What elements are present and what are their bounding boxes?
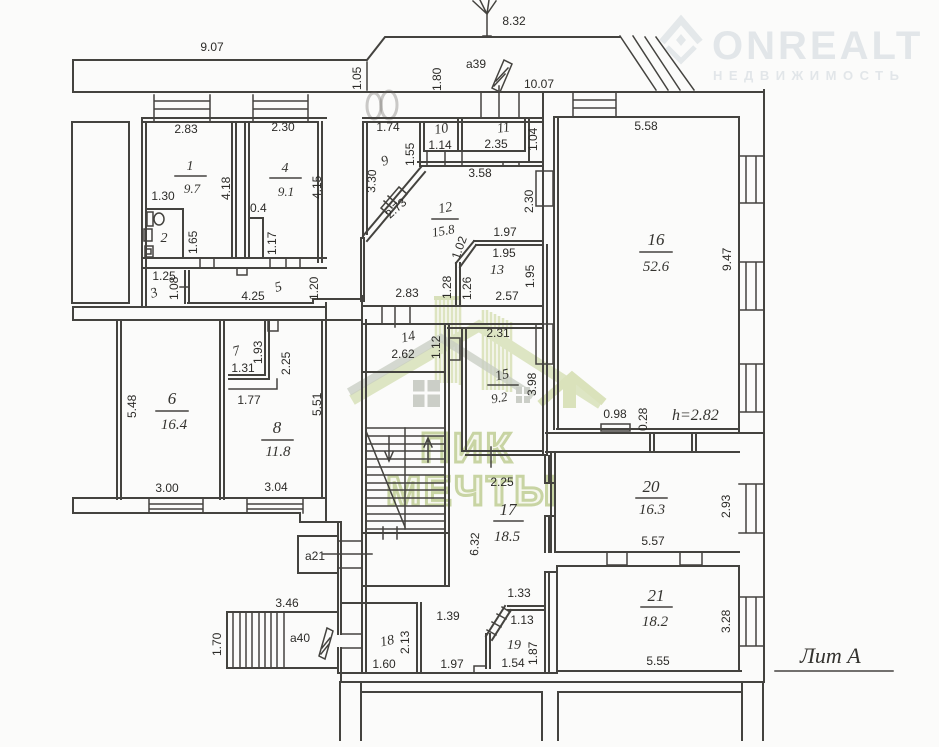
- svg-text:НЕДВИЖИМОСТЬ: НЕДВИЖИМОСТЬ: [713, 68, 905, 83]
- svg-text:2.62: 2.62: [391, 347, 415, 361]
- svg-text:2.35: 2.35: [484, 137, 508, 151]
- svg-text:1.13: 1.13: [510, 613, 534, 627]
- svg-text:19: 19: [507, 638, 521, 653]
- svg-text:2.30: 2.30: [522, 189, 536, 213]
- svg-text:2.83: 2.83: [174, 122, 198, 136]
- svg-text:1.80: 1.80: [430, 67, 444, 91]
- svg-text:3.30: 3.30: [364, 169, 379, 193]
- svg-text:17: 17: [500, 500, 519, 519]
- svg-text:1.05: 1.05: [350, 66, 364, 90]
- svg-text:ONREALT: ONREALT: [712, 24, 923, 68]
- svg-text:5.58: 5.58: [634, 119, 658, 133]
- svg-text:1.60: 1.60: [372, 657, 396, 671]
- svg-text:1.95: 1.95: [492, 246, 516, 260]
- svg-text:1.95: 1.95: [523, 264, 537, 288]
- svg-text:3.46: 3.46: [275, 596, 299, 610]
- svg-text:1.97: 1.97: [440, 657, 464, 671]
- svg-text:1.39: 1.39: [436, 609, 460, 623]
- svg-text:2.93: 2.93: [719, 494, 733, 518]
- svg-text:1.12: 1.12: [429, 335, 443, 359]
- svg-text:1.65: 1.65: [186, 230, 200, 254]
- svg-text:13: 13: [490, 263, 504, 278]
- svg-text:3.28: 3.28: [719, 609, 733, 633]
- svg-text:11: 11: [496, 120, 511, 137]
- svg-text:1.77: 1.77: [237, 393, 261, 407]
- svg-text:18.5: 18.5: [494, 529, 521, 545]
- svg-text:16.3: 16.3: [639, 502, 665, 518]
- svg-text:1.17: 1.17: [265, 231, 279, 255]
- svg-text:5.57: 5.57: [641, 534, 665, 548]
- svg-text:4: 4: [282, 161, 289, 176]
- svg-text:6.32: 6.32: [467, 532, 482, 556]
- svg-text:1.30: 1.30: [151, 189, 175, 203]
- svg-text:16: 16: [648, 230, 666, 249]
- svg-text:4.25: 4.25: [241, 289, 265, 303]
- svg-text:h=2.82: h=2.82: [672, 407, 719, 424]
- svg-text:6: 6: [168, 389, 177, 408]
- svg-text:1.55: 1.55: [403, 142, 417, 166]
- svg-text:1.08: 1.08: [167, 276, 181, 300]
- svg-text:9.7: 9.7: [184, 181, 201, 196]
- svg-text:0.28: 0.28: [636, 407, 650, 431]
- svg-text:1.20: 1.20: [307, 276, 321, 300]
- svg-text:9.47: 9.47: [720, 247, 734, 271]
- svg-text:2: 2: [161, 231, 168, 246]
- svg-text:12: 12: [437, 200, 453, 217]
- svg-text:1.87: 1.87: [526, 641, 540, 665]
- svg-text:11.8: 11.8: [265, 444, 291, 460]
- svg-text:1.04: 1.04: [526, 127, 540, 151]
- svg-text:1.33: 1.33: [507, 586, 531, 600]
- svg-text:3.00: 3.00: [155, 481, 179, 495]
- svg-text:1.28: 1.28: [440, 275, 454, 299]
- svg-text:5.48: 5.48: [125, 394, 139, 418]
- svg-text:9.07: 9.07: [200, 40, 224, 54]
- svg-text:1.74: 1.74: [376, 120, 400, 134]
- svg-text:3.98: 3.98: [525, 372, 539, 396]
- svg-text:3.58: 3.58: [468, 166, 492, 180]
- svg-text:а40: а40: [290, 631, 310, 645]
- svg-text:8: 8: [273, 418, 282, 437]
- svg-text:18.2: 18.2: [642, 614, 669, 630]
- svg-text:5.51: 5.51: [310, 392, 324, 416]
- svg-text:а39: а39: [466, 57, 486, 71]
- svg-text:2.83: 2.83: [395, 286, 419, 300]
- svg-text:1: 1: [187, 159, 194, 174]
- svg-text:1.26: 1.26: [460, 276, 474, 300]
- svg-text:а21: а21: [305, 549, 325, 563]
- svg-text:4.18: 4.18: [219, 176, 233, 200]
- svg-text:2.57: 2.57: [495, 289, 519, 303]
- svg-text:4.15: 4.15: [310, 175, 324, 199]
- svg-text:9.2: 9.2: [490, 389, 509, 407]
- svg-text:0.98: 0.98: [603, 407, 627, 421]
- svg-text:5.55: 5.55: [646, 654, 670, 668]
- svg-text:16.4: 16.4: [161, 417, 188, 433]
- svg-text:Лит А: Лит А: [799, 643, 861, 668]
- svg-text:10.07: 10.07: [524, 77, 554, 91]
- svg-text:0.4: 0.4: [250, 201, 267, 215]
- svg-text:10: 10: [433, 121, 449, 138]
- svg-text:2.25: 2.25: [490, 475, 514, 489]
- svg-text:1.70: 1.70: [210, 632, 224, 656]
- svg-text:8.32: 8.32: [502, 14, 526, 28]
- svg-text:3.04: 3.04: [264, 480, 288, 494]
- svg-text:20: 20: [643, 477, 661, 496]
- svg-text:21: 21: [648, 586, 665, 605]
- svg-text:1.14: 1.14: [428, 138, 452, 152]
- svg-text:2.31: 2.31: [486, 326, 510, 340]
- svg-text:2.13: 2.13: [398, 630, 412, 654]
- svg-text:2.25: 2.25: [279, 351, 293, 375]
- svg-text:1.31: 1.31: [231, 361, 255, 375]
- svg-text:1.97: 1.97: [493, 225, 517, 239]
- svg-text:9.1: 9.1: [278, 184, 294, 199]
- svg-text:1.54: 1.54: [501, 656, 525, 670]
- svg-text:2.30: 2.30: [271, 120, 295, 134]
- svg-text:52.6: 52.6: [643, 259, 670, 275]
